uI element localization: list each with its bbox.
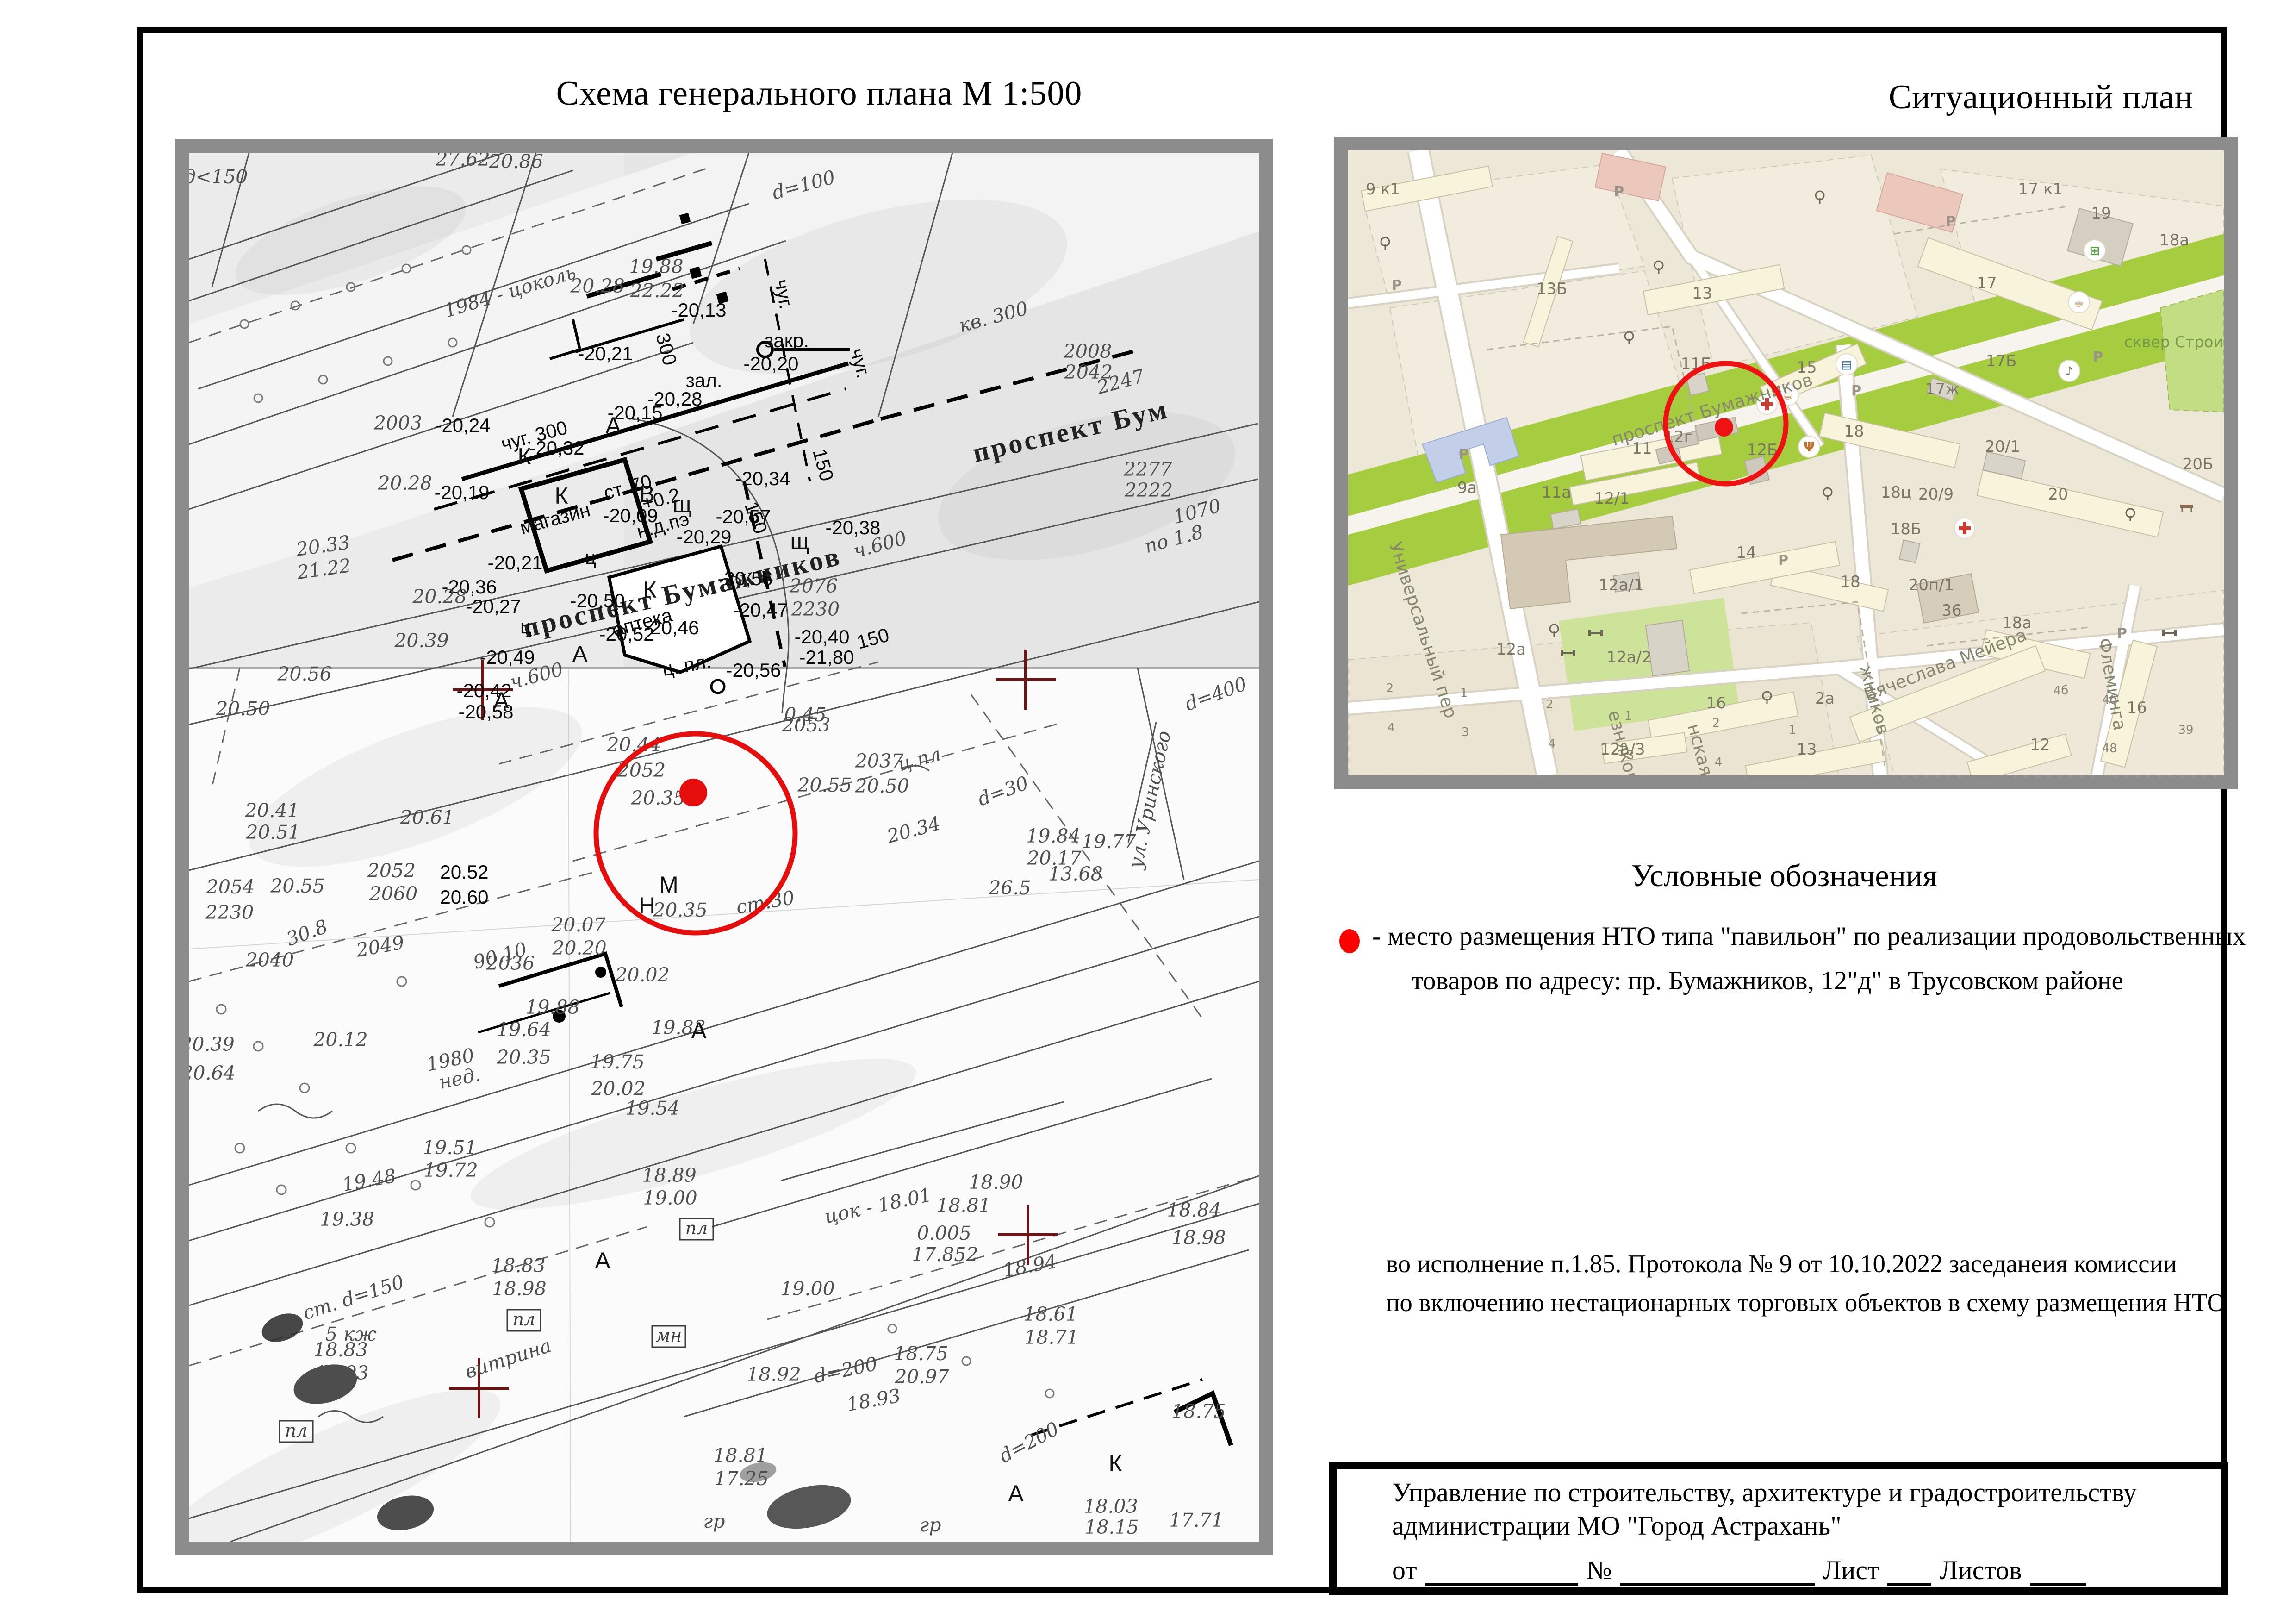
stamp-sheets-field	[2030, 1560, 2086, 1586]
map-label: А	[493, 687, 509, 713]
map-label: 20.28	[570, 275, 624, 297]
map-label: К	[1108, 1450, 1122, 1476]
stamp-sheets-label: Листов	[1940, 1555, 2022, 1586]
map-label: 4	[1388, 721, 1395, 735]
map-label: 19.51	[423, 1137, 477, 1159]
protocol-note-line2: по включению нестационарных торговых объ…	[1386, 1283, 2296, 1322]
map-label: 18.81	[713, 1444, 767, 1467]
map-label: 13	[1692, 284, 1712, 303]
restaurant-icon: Ψ	[1798, 436, 1820, 457]
map-label: 20.35	[630, 787, 685, 809]
map-label: 18.15	[1084, 1516, 1139, 1538]
map-label: 2	[1712, 716, 1720, 730]
map-label: 18.84	[1167, 1199, 1221, 1221]
map-label: 20.39	[394, 630, 448, 652]
map-label: А	[1008, 1480, 1024, 1506]
stamp-org-line2: администрации МО "Город Астрахань"	[1392, 1509, 2221, 1543]
map-label: 2230	[205, 901, 254, 924]
map-label: 20.35	[496, 1046, 551, 1068]
genplan-title: Схема генерального плана М 1:500	[509, 74, 1129, 113]
parking-icon: P	[1851, 383, 1861, 399]
svg-text:P: P	[1614, 184, 1624, 200]
map-label: 2053	[782, 714, 830, 736]
stamp-number-field	[1620, 1560, 1815, 1586]
map-label: 20.28	[412, 586, 467, 608]
legend-entry-line2: товаров по адресу: пр. Бумажников, 12"д"…	[1412, 959, 2296, 1003]
location-dot	[679, 779, 707, 806]
map-label: ц	[585, 546, 596, 568]
map-label: 2230	[791, 598, 840, 620]
map-label: -20,20	[743, 353, 798, 375]
map-label: 18.92	[747, 1363, 801, 1386]
map-label: сквер Строителей	[2124, 333, 2224, 351]
document-page: Схема генерального плана М 1:500 Ситуаци…	[0, 0, 2296, 1624]
map-label: 12а/3	[1600, 740, 1645, 759]
legend-title: Условные обозначения	[1472, 857, 2097, 894]
stamp-org-line1: Управление по строительству, архитектуре…	[1392, 1476, 2221, 1509]
map-label: 17.852	[912, 1243, 978, 1266]
protocol-note-line1: во исполнение п.1.85. Протокола № 9 от 1…	[1386, 1244, 2296, 1283]
map-label: -20,47	[733, 599, 788, 621]
map-label: 2277	[1123, 458, 1172, 481]
stamp-date-field	[1425, 1560, 1578, 1586]
map-label: 18ц	[1881, 483, 1911, 502]
map-label: -20,28	[647, 388, 702, 410]
map-label: 2054	[206, 876, 255, 898]
map-label: 27.62	[435, 153, 490, 170]
map-label: 15	[1797, 358, 1817, 377]
map-label: 20.61	[399, 806, 454, 829]
parking-icon: P	[2117, 625, 2127, 642]
svg-text:P: P	[1392, 277, 1402, 294]
map-label: -20,13	[671, 299, 726, 321]
map-label: К	[554, 483, 568, 509]
map-label: 18.03	[1083, 1495, 1138, 1518]
map-label: 20	[2048, 485, 2068, 504]
map-label: 17.71	[1169, 1509, 1223, 1531]
map-label: 16	[1706, 694, 1726, 712]
map-label: А	[572, 641, 588, 667]
map-label: 36	[1941, 601, 1961, 620]
stamp-from-label: от	[1392, 1555, 1417, 1586]
map-label: 3	[1462, 725, 1469, 739]
map-label: 20.41	[244, 800, 299, 822]
svg-text:P: P	[2117, 625, 2127, 642]
map-label: 4б	[2102, 693, 2117, 707]
map-label: 19.00	[780, 1278, 834, 1300]
map-label: 18.98	[1171, 1227, 1226, 1249]
map-label: -20,50	[570, 590, 625, 612]
map-label: 16	[2127, 699, 2147, 717]
map-label: 20Б	[2183, 455, 2214, 474]
map-label: гр	[920, 1514, 941, 1536]
map-label: 2040	[245, 949, 294, 971]
svg-text:P: P	[2093, 349, 2103, 365]
map-label: 39	[2178, 723, 2193, 737]
parking-icon: P	[2093, 349, 2103, 365]
map-label: 48	[2102, 742, 2117, 756]
map-label: 2052	[367, 860, 416, 882]
map-label: 1	[1460, 686, 1468, 700]
medical-icon	[1954, 518, 1975, 538]
map-label: пл	[513, 1309, 535, 1330]
parking-icon: P	[1946, 213, 1956, 230]
map-label: -20,21	[578, 343, 633, 364]
parking-icon: P	[1459, 446, 1469, 462]
map-label: 20.52	[440, 861, 488, 883]
map-label: 20.97	[894, 1366, 949, 1388]
protocol-note: во исполнение п.1.85. Протокола № 9 от 1…	[1386, 1244, 2296, 1322]
map-label: А	[691, 1018, 707, 1043]
map-label: пл	[685, 1218, 708, 1238]
approval-stamp-box: Управление по строительству, архитектуре…	[1329, 1462, 2228, 1595]
map-label: 20.20	[552, 937, 606, 959]
map-label: 18.98	[492, 1278, 546, 1300]
map-label: 18.61	[1023, 1303, 1077, 1325]
map-label: 17Б	[1986, 352, 2017, 370]
map-label: закр.	[765, 330, 809, 351]
map-label: 5 кж	[325, 1323, 377, 1345]
stamp-sheet-field	[1887, 1560, 1931, 1586]
svg-text:P: P	[1778, 552, 1788, 568]
svg-text:♪: ♪	[2066, 364, 2073, 378]
mic-icon: ♪	[2059, 360, 2080, 381]
map-label: 20.35	[653, 899, 707, 921]
map-label: А	[605, 412, 621, 438]
legend-item: - место размещения НТО типа "павильон" п…	[1328, 914, 2296, 1003]
map-label: 2060	[369, 883, 417, 905]
map-label: 20.64	[189, 1062, 236, 1084]
map-label: 2076	[789, 575, 838, 597]
map-label: -20,56	[717, 568, 772, 589]
genplan-map: проспект Бумажниковпроспект Бум-20,13-20…	[189, 153, 1259, 1542]
stamp-sheet-label: Лист	[1823, 1555, 1879, 1586]
map-label: -20,40	[794, 626, 849, 648]
map-label: 18.71	[1024, 1326, 1078, 1349]
map-label: 11а	[1542, 483, 1571, 502]
map-label: 18а	[2159, 231, 2189, 250]
map-label: 18.81	[936, 1194, 990, 1217]
map-label: 19.88	[525, 996, 579, 1018]
map-label: 12а/2	[1606, 648, 1651, 667]
map-label: 14	[1736, 543, 1756, 562]
parking-icon: P	[1614, 184, 1624, 200]
map-label: -20,19	[434, 481, 489, 503]
map-label: 11	[1632, 439, 1652, 458]
map-label: 20.55	[797, 774, 852, 796]
location-dot	[1715, 418, 1733, 437]
map-label: 20.50	[854, 775, 909, 797]
map-label: 13.68	[1048, 863, 1102, 885]
cart-icon: ⊞	[2084, 240, 2105, 261]
map-label: 4б	[2053, 684, 2069, 698]
map-label: 19.88	[629, 256, 683, 278]
map-label: -20,27	[466, 595, 521, 617]
map-label: 12/1	[1594, 489, 1630, 508]
map-label: К	[643, 577, 656, 603]
map-label: пл	[285, 1420, 308, 1441]
svg-text:P: P	[1851, 383, 1861, 399]
bank-icon: ▤	[1836, 354, 1857, 375]
map-label: 18.89	[642, 1164, 696, 1187]
svg-text:P: P	[1459, 446, 1469, 462]
map-label: 20.86	[488, 153, 543, 173]
svg-text:☕: ☕	[2073, 296, 2084, 310]
map-label: 12а/1	[1599, 576, 1643, 594]
map-label: 2222	[1124, 479, 1173, 501]
stamp-number-label: №	[1587, 1555, 1612, 1586]
map-label: 20.39	[189, 1033, 235, 1056]
map-label: 1	[1789, 723, 1797, 737]
map-label: 18.93	[314, 1362, 368, 1384]
svg-text:⊞: ⊞	[2090, 244, 2100, 258]
map-label: 17	[1977, 274, 1997, 293]
map-label: 20.02	[615, 964, 669, 986]
map-label: 13	[1797, 740, 1817, 759]
svg-text:P: P	[1946, 213, 1956, 230]
map-label: 18	[1840, 573, 1860, 591]
map-label: 2008	[1063, 340, 1112, 362]
map-label: 19.72	[423, 1159, 478, 1181]
map-label: 4	[1715, 756, 1723, 769]
map-label: -20,56	[726, 659, 781, 681]
map-label: -20,34	[735, 468, 790, 489]
map-label: 19.54	[625, 1097, 679, 1119]
map-label: д<150	[189, 166, 248, 188]
map-label: 18	[1844, 422, 1864, 441]
map-label: 20.28	[377, 472, 432, 494]
map-label: 18Б	[1891, 520, 1922, 538]
map-label: А	[595, 1248, 610, 1274]
sitplan-map-frame: PPPPPPPP☕☕Ψ⊞▤♪ проспект БумажниковУнивер…	[1334, 137, 2238, 789]
map-label: 18.75	[894, 1343, 948, 1365]
map-label: 3	[1627, 749, 1635, 762]
map-label: 19.75	[590, 1051, 644, 1073]
map-label: 17 к1	[2018, 180, 2063, 199]
map-label: 20.56	[277, 663, 331, 685]
map-label: 18а	[2002, 614, 2032, 632]
map-label: 2003	[373, 412, 422, 434]
map-label: 18.75	[1171, 1400, 1226, 1423]
map-label: 20/9	[1918, 485, 1954, 504]
map-label: 2	[1386, 681, 1394, 695]
map-label: -21,80	[799, 646, 854, 668]
map-label: 20п/1	[1909, 576, 1954, 594]
map-label: 13Б	[1537, 280, 1568, 298]
svg-text:Ψ: Ψ	[1804, 439, 1815, 455]
pavilion-marker-icon	[1339, 929, 1360, 953]
map-label: 9а	[1457, 479, 1477, 497]
sitplan-map: PPPPPPPP☕☕Ψ⊞▤♪ проспект БумажниковУнивер…	[1348, 150, 2224, 775]
map-label: 18.83	[491, 1255, 545, 1277]
genplan-map-frame: проспект Бумажниковпроспект Бум-20,13-20…	[175, 139, 1273, 1555]
map-label: 20.60	[440, 886, 488, 908]
map-label: 20.02	[591, 1078, 645, 1100]
map-label: 2	[1546, 698, 1554, 712]
svg-text:▤: ▤	[1842, 358, 1852, 371]
map-label: 17ж	[1925, 380, 1960, 399]
map-label: -20,21	[487, 552, 542, 574]
map-label: 12	[2030, 736, 2050, 754]
map-label: 1	[1624, 709, 1632, 723]
map-label: 2а	[1815, 689, 1835, 708]
map-label: 9 к1	[1366, 180, 1400, 199]
map-label: 0.005	[917, 1222, 971, 1244]
map-label: 20.51	[245, 821, 300, 843]
map-label: 20.07	[551, 914, 606, 936]
map-label: 18.90	[969, 1171, 1023, 1193]
map-label: 22.22	[629, 280, 684, 302]
sitplan-title: Ситуационный план	[1879, 78, 2203, 117]
map-label: 19	[2091, 204, 2111, 223]
map-label: 20.50	[215, 698, 270, 720]
map-label: 12а	[1496, 640, 1526, 659]
parking-icon: P	[1778, 552, 1788, 568]
cafe-icon: ☕	[2068, 292, 2090, 313]
legend-entry-line1: - место размещения НТО типа "павильон" п…	[1372, 914, 2296, 959]
map-label: 19.38	[320, 1208, 374, 1230]
map-label: -20,24	[435, 414, 490, 436]
map-label: 19.64	[497, 1018, 551, 1041]
map-label: К	[517, 443, 531, 469]
map-label: 17.25	[714, 1468, 768, 1490]
map-label: М	[659, 872, 678, 898]
map-label: 4	[1548, 737, 1556, 751]
parking-icon: P	[1392, 277, 1402, 294]
map-label: зал.	[686, 369, 722, 391]
map-label: 26.5	[988, 877, 1031, 899]
map-label: 20/1	[1985, 437, 2020, 456]
map-label: щ	[790, 528, 809, 554]
map-label: 20.55	[270, 875, 324, 897]
map-label: гр	[703, 1510, 725, 1532]
map-label: 19.00	[643, 1187, 697, 1209]
map-label: 20.12	[313, 1029, 367, 1051]
map-label: -20,49	[479, 646, 535, 668]
map-label: ц	[520, 616, 531, 637]
map-label: 19.84	[1026, 825, 1080, 847]
map-label: мн	[656, 1325, 682, 1346]
